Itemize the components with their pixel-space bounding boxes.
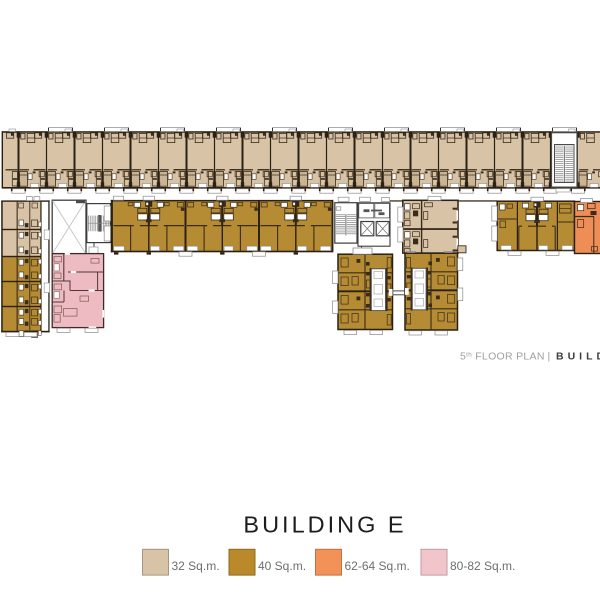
svg-text:32 Sq.m.: 32 Sq.m. bbox=[172, 559, 220, 573]
svg-text:40 Sq.m.: 40 Sq.m. bbox=[258, 559, 306, 573]
svg-text:80-82 Sq.m.: 80-82 Sq.m. bbox=[450, 559, 515, 573]
svg-text:|: | bbox=[548, 351, 551, 363]
svg-text:BUILDING E: BUILDING E bbox=[243, 512, 406, 538]
svg-text:62-64 Sq.m.: 62-64 Sq.m. bbox=[345, 559, 410, 573]
svg-text:BUILDING E: BUILDING E bbox=[556, 351, 600, 363]
svg-text:5th FLOOR PLAN: 5th FLOOR PLAN bbox=[460, 351, 545, 363]
